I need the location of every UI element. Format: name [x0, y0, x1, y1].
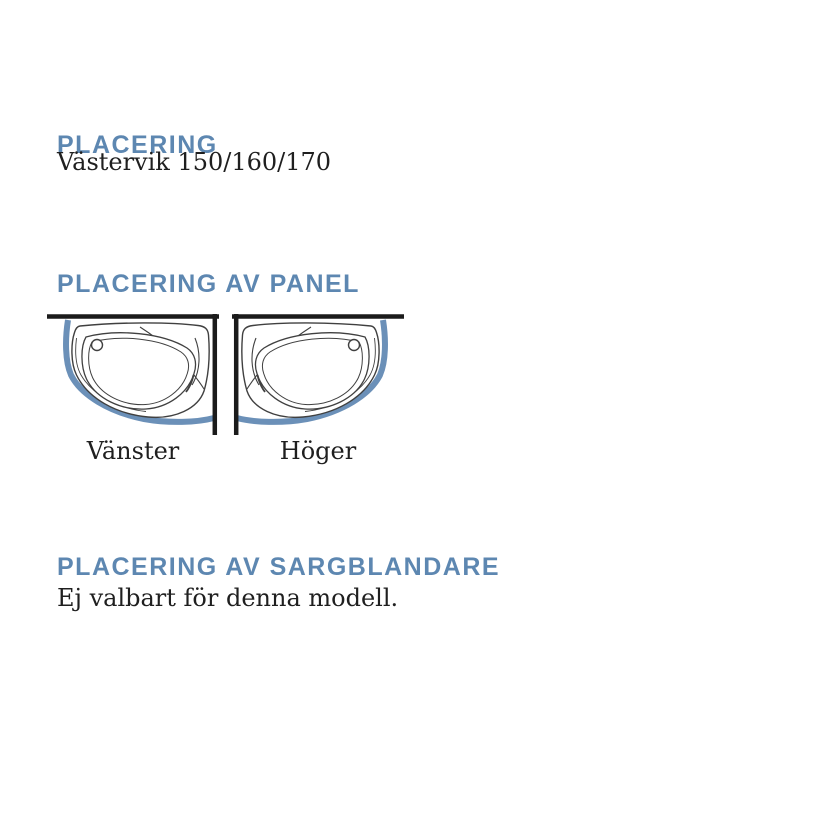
panel-placement-diagrams: Vänster Höger: [0, 314, 828, 464]
panel-option-left-label[interactable]: Vänster: [47, 437, 219, 465]
page-root: { "page": { "background": "#ffffff", "ac…: [0, 0, 828, 828]
sargblandare-note: Ej valbart för denna modell.: [57, 584, 398, 613]
sargblandare-heading: PLACERING AV SARGBLANDARE: [57, 554, 500, 582]
panel-option-right-label[interactable]: Höger: [232, 437, 404, 465]
drain-icon: [92, 340, 103, 351]
panel-option-right[interactable]: [232, 314, 404, 436]
panel-placement-heading: PLACERING AV PANEL: [57, 271, 360, 299]
bathtub-left-icon: [47, 314, 219, 436]
drain-icon: [349, 340, 360, 351]
model-name: Västervik 150/160/170: [57, 148, 331, 177]
bathtub-right-icon: [232, 314, 404, 436]
panel-option-left[interactable]: [47, 314, 219, 436]
